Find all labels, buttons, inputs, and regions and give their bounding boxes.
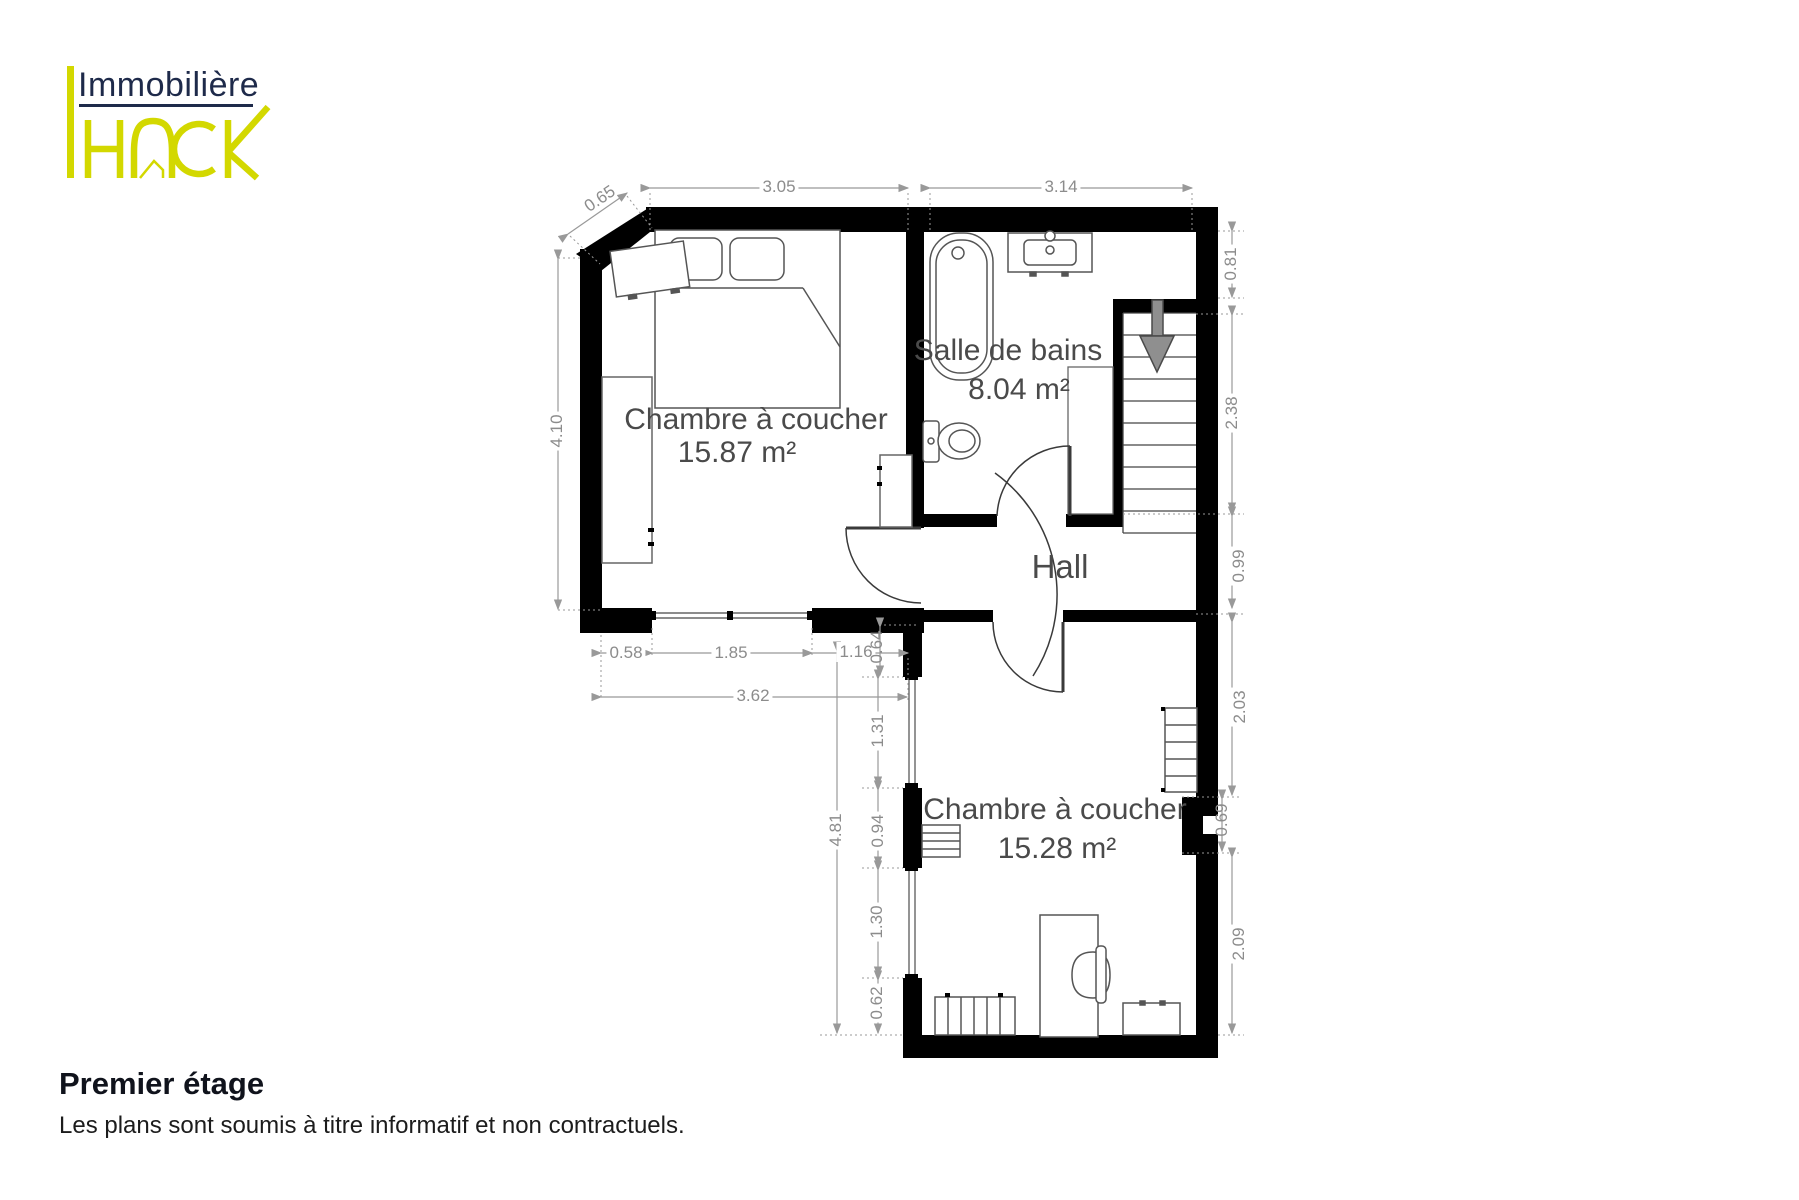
radiator-right-wall bbox=[1161, 707, 1197, 792]
dim-label-top-bathroom: 3.14 bbox=[1041, 177, 1080, 197]
room-label-bedroom1-name: Chambre à coucher bbox=[624, 403, 887, 437]
dim-label-right-5: 0.69 bbox=[1212, 803, 1232, 836]
furniture bbox=[602, 230, 1197, 1037]
sink bbox=[1008, 231, 1092, 276]
dim-label-side-1: 1.31 bbox=[868, 711, 888, 750]
door-bathroom bbox=[997, 446, 1070, 516]
room-label-bedroom2-name: Chambre à coucher bbox=[923, 793, 1186, 827]
room-label-hall: Hall bbox=[1032, 548, 1089, 586]
dim-label-side-4: 0.62 bbox=[867, 983, 887, 1022]
dim-label-offset-small: 0.64 bbox=[867, 630, 887, 663]
disclaimer-text: Les plans sont soumis à titre informatif… bbox=[59, 1112, 685, 1140]
dresser bbox=[1123, 1001, 1180, 1035]
dim-label-right-3: 0.99 bbox=[1229, 546, 1249, 585]
dim-label-total-width: 3.62 bbox=[733, 686, 772, 706]
dim-label-right-2: 2.38 bbox=[1222, 393, 1242, 432]
room-label-bathroom-area: 8.04 m² bbox=[968, 373, 1070, 407]
logo-brand: HACK bbox=[80, 118, 275, 180]
radiator-left-stub bbox=[922, 825, 960, 857]
logo-divider bbox=[79, 104, 253, 107]
dim-label-right-6: 2.09 bbox=[1229, 924, 1249, 963]
window-bedroom2-west-upper bbox=[905, 675, 918, 788]
room-label-bedroom1-area: 15.87 m² bbox=[678, 436, 796, 470]
wardrobe-right bbox=[877, 455, 912, 527]
toilet bbox=[923, 421, 980, 462]
floor-plan-page: Immobilière HACK Chambre à coucher 15.87… bbox=[0, 0, 1799, 1200]
room-label-bathroom-name: Salle de bains bbox=[914, 334, 1102, 368]
pillow bbox=[730, 238, 784, 280]
dim-label-right-1: 0.81 bbox=[1221, 244, 1241, 283]
page-title: Premier étage bbox=[59, 1066, 264, 1102]
dim-label-side-3: 1.30 bbox=[867, 902, 887, 941]
dim-label-side-2: 0.94 bbox=[868, 811, 888, 850]
window-bedroom1-south bbox=[650, 608, 813, 633]
dim-label-win-row-a: 0.58 bbox=[606, 643, 645, 663]
logo-line1: Immobilière bbox=[78, 66, 259, 105]
radiator-bottom bbox=[935, 993, 1015, 1035]
logo-accent-bar bbox=[67, 66, 74, 178]
floor-plan-drawing bbox=[0, 0, 1799, 1200]
window-bedroom2-west-lower bbox=[905, 866, 918, 979]
dim-label-right-4: 2.03 bbox=[1230, 687, 1250, 726]
dim-label-top-bedroom1: 3.05 bbox=[759, 177, 798, 197]
room-label-bedroom2-area: 15.28 m² bbox=[998, 832, 1116, 866]
dim-label-total-height: 4.81 bbox=[826, 810, 846, 849]
dim-label-win-row-b: 1.85 bbox=[711, 643, 750, 663]
dim-label-left: 4.10 bbox=[547, 411, 567, 450]
tv bbox=[610, 241, 690, 301]
door-bedroom1 bbox=[846, 528, 921, 603]
